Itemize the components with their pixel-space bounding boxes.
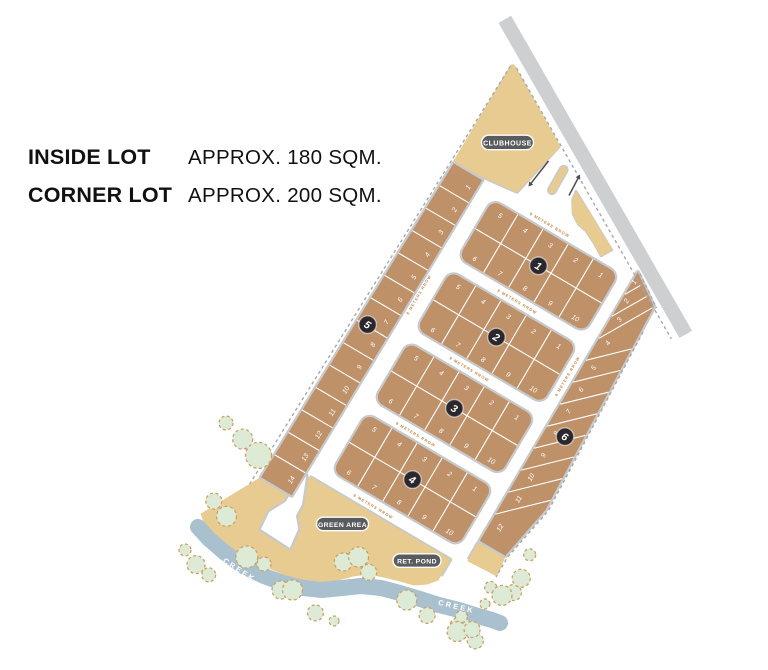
svg-text:CLUBHOUSE: CLUBHOUSE xyxy=(483,140,532,147)
svg-text:RET. POND: RET. POND xyxy=(397,558,437,565)
svg-text:GREEN AREA: GREEN AREA xyxy=(318,522,367,529)
